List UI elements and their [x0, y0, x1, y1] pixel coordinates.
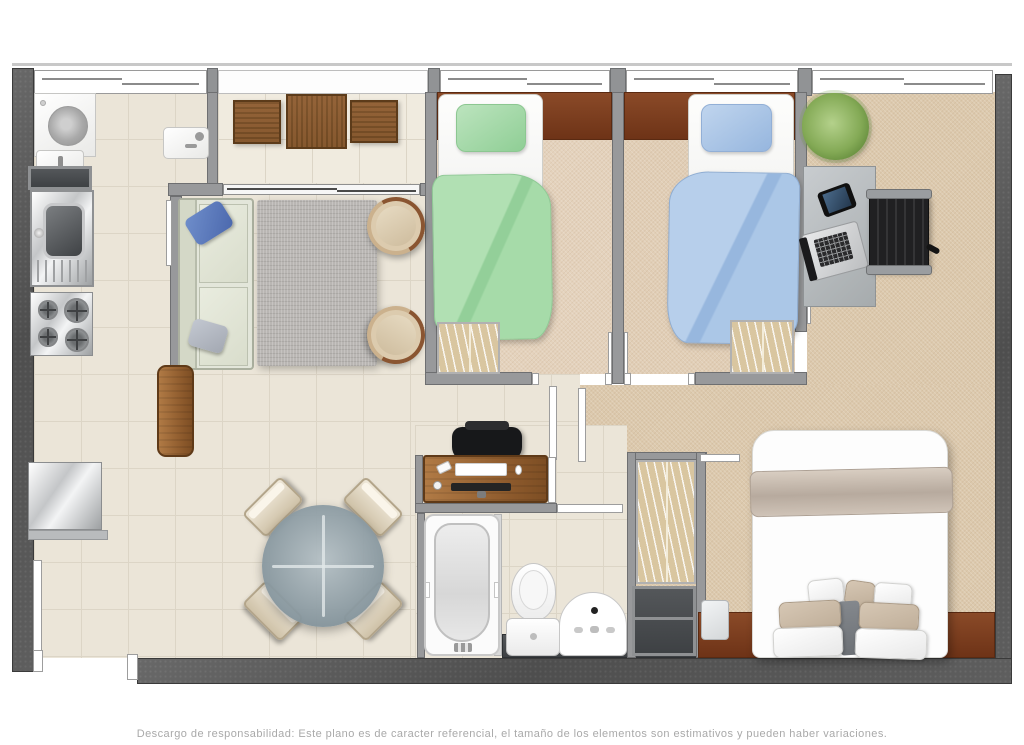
stove-icon: [30, 292, 93, 356]
bedroom2-door-jamb-left: [624, 373, 631, 385]
master-door-leaf: [578, 388, 586, 462]
sink-faucet-icon: [34, 228, 44, 238]
wardrobe-bedroom2-icon: [730, 320, 794, 374]
divider-jamb-left: [608, 332, 612, 374]
balcony-chair-icon: [350, 100, 398, 143]
basin-handle-left: [574, 627, 583, 633]
sink-drainboard: [37, 260, 89, 282]
phone-icon: [436, 460, 452, 474]
keyboard-icon: [455, 463, 507, 476]
toilet-tank: [506, 618, 560, 656]
window-bedroom-1: [440, 70, 610, 94]
balcony-table-icon: [286, 94, 347, 149]
burner-icon: [64, 298, 89, 323]
dining-table-icon: [262, 505, 384, 627]
divider-jamb-right: [624, 332, 628, 374]
entry-jamb-right: [127, 654, 138, 680]
bathtub-icon: [424, 514, 500, 656]
double-bed-icon: [752, 430, 948, 658]
washbasin-icon: [559, 592, 627, 656]
nightstand-icon: [701, 600, 729, 640]
wall-bottom: [137, 658, 1012, 684]
entry-door-leaf: [33, 560, 42, 652]
burner-icon: [65, 328, 89, 352]
hall-cabinet-icon: [632, 586, 696, 656]
entry-jamb-left: [33, 650, 43, 672]
wall-closet-col-top: [627, 452, 707, 460]
mouse-icon: [515, 465, 522, 475]
window-kitchen: [34, 70, 207, 94]
sofa-icon: [178, 198, 254, 370]
bath-door-leaf: [557, 504, 623, 513]
toilet-icon: [511, 563, 556, 621]
basin-handle-right: [606, 627, 615, 633]
washing-machine-icon: [34, 93, 96, 157]
duvet-blue-icon: [667, 171, 801, 345]
washer-drum: [48, 106, 88, 146]
burner-icon: [38, 300, 58, 320]
wall-right: [995, 74, 1012, 684]
laptop-keys: [813, 231, 853, 267]
wall-under-desk: [415, 503, 557, 513]
monitor-stand: [477, 491, 486, 498]
burner-icon: [38, 327, 58, 347]
kitchen-sink-icon: [30, 190, 94, 287]
tub-handle-left: [425, 582, 430, 598]
wardrobe-hall-icon: [636, 460, 696, 584]
wall-balcony-left: [168, 183, 223, 196]
sink-bowl: [43, 203, 85, 259]
refrigerator-icon: [28, 462, 102, 530]
tablet-screen: [822, 186, 851, 213]
floor-plan: [0, 0, 1024, 745]
fridge-shelf: [28, 530, 108, 540]
bath-door-jamb: [548, 457, 556, 503]
tub-faucet: [454, 643, 472, 652]
pillow-green-icon: [456, 104, 526, 152]
monitor-icon: [451, 483, 511, 491]
laundry-faucet-spout: [185, 144, 197, 148]
pillow-icon: [772, 626, 843, 658]
wardrobe-bedroom1-icon: [437, 322, 500, 374]
living-door-jamb: [166, 200, 172, 266]
tub-handle-right: [494, 582, 499, 598]
bedroom2-door-jamb-right: [688, 373, 695, 385]
rug-icon: [257, 200, 377, 366]
bedroom1-door-jamb-left: [532, 373, 539, 385]
laundry-counter: [28, 166, 92, 190]
wall-left: [12, 68, 34, 672]
wall-bedrooms-divider: [612, 92, 624, 384]
balcony-railing: [218, 70, 428, 94]
laundry-sink-icon: [163, 127, 209, 159]
plant-icon: [802, 93, 869, 160]
basin-drain: [590, 626, 599, 633]
top-facade-line: [12, 63, 1012, 66]
window-office: [812, 70, 993, 94]
disclaimer-text: Descargo de responsabilidad: Este plano …: [0, 728, 1024, 740]
washer-knob: [40, 100, 46, 106]
pillow-blue-bed-icon: [701, 104, 772, 152]
balcony-chair-icon: [233, 100, 281, 144]
pillow-icon: [854, 628, 927, 660]
cabinet-divider: [635, 617, 693, 620]
mug-icon: [433, 481, 442, 490]
desk-icon: [423, 455, 548, 503]
basin-faucet-icon: [591, 607, 598, 614]
bed-blanket-band: [750, 467, 954, 518]
master-entry-jamb: [700, 454, 740, 462]
bedroom1-door-jamb-right: [605, 373, 612, 385]
office-chair-icon: [869, 193, 929, 271]
bedroom1-door-leaf: [549, 386, 557, 460]
duvet-green-icon: [432, 173, 554, 341]
window-bedroom-2: [626, 70, 798, 94]
laundry-faucet-icon: [195, 132, 204, 141]
balcony-sliding-door: [223, 184, 420, 195]
wood-door-icon: [157, 365, 194, 457]
